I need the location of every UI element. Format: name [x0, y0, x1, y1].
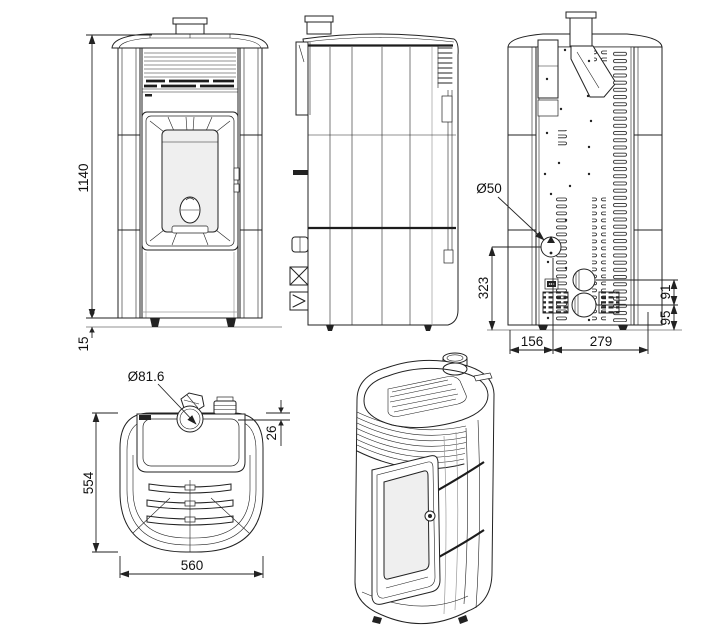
dim-front-foot-height: 15 — [76, 336, 91, 351]
side-handle-rod — [293, 170, 308, 175]
front-lower-panel — [142, 252, 238, 318]
dim-front-height: 1140 — [76, 163, 91, 192]
dim-rear-intake-dia: Ø50 — [476, 181, 502, 196]
persp-foot — [458, 615, 468, 624]
dim-top-depth: 554 — [81, 471, 96, 494]
rear-flue-pipe — [570, 16, 592, 46]
side-rear-panel — [296, 42, 308, 115]
front-view: 1140 15 — [76, 18, 282, 352]
front-foot — [226, 318, 236, 327]
persp-door-glass — [384, 471, 429, 579]
side-rear-fittings — [290, 170, 308, 310]
side-foot — [424, 325, 432, 331]
persp-foot — [372, 616, 382, 624]
top-flue-collar — [177, 393, 204, 432]
front-dimensions: 1140 15 — [76, 35, 152, 352]
dim-rear-intake-height: 323 — [476, 277, 491, 300]
front-door — [142, 112, 239, 250]
dim-top-flue-dia: Ø81.6 — [128, 369, 165, 384]
rear-terminal-grid — [543, 292, 568, 313]
rear-foot — [538, 325, 548, 330]
front-flue-cap — [173, 18, 207, 24]
perspective-view — [355, 353, 494, 624]
rear-hopper-chute — [538, 40, 558, 98]
front-ash-lip — [172, 226, 208, 233]
front-door-latch — [234, 168, 239, 180]
dim-rear-span-right: 279 — [590, 334, 613, 349]
side-foot — [326, 325, 334, 331]
top-grille-slats — [147, 480, 233, 528]
rear-view: Ø50 323 156 279 91 95 — [476, 12, 682, 354]
dim-rear-span-left: 156 — [521, 334, 544, 349]
dim-top-flue-offset: 26 — [264, 425, 279, 440]
side-view — [290, 16, 458, 331]
dim-top-width: 560 — [181, 558, 204, 573]
rear-foot — [618, 325, 628, 330]
front-louver-grille — [142, 53, 238, 89]
dim-rear-outlet-height: 95 — [658, 310, 673, 325]
front-foot — [150, 318, 160, 327]
technical-drawing: 1140 15 — [0, 0, 702, 635]
persp-door — [372, 456, 440, 605]
side-body — [303, 34, 458, 325]
top-lid-latch — [214, 397, 236, 414]
rear-power-inlet — [545, 279, 558, 289]
rear-terminal-grid — [599, 292, 619, 313]
top-view: Ø81.6 554 560 26 — [81, 369, 290, 578]
drawing-canvas: 1140 15 — [0, 0, 702, 635]
dim-rear-outlet-spacing: 91 — [658, 284, 673, 299]
